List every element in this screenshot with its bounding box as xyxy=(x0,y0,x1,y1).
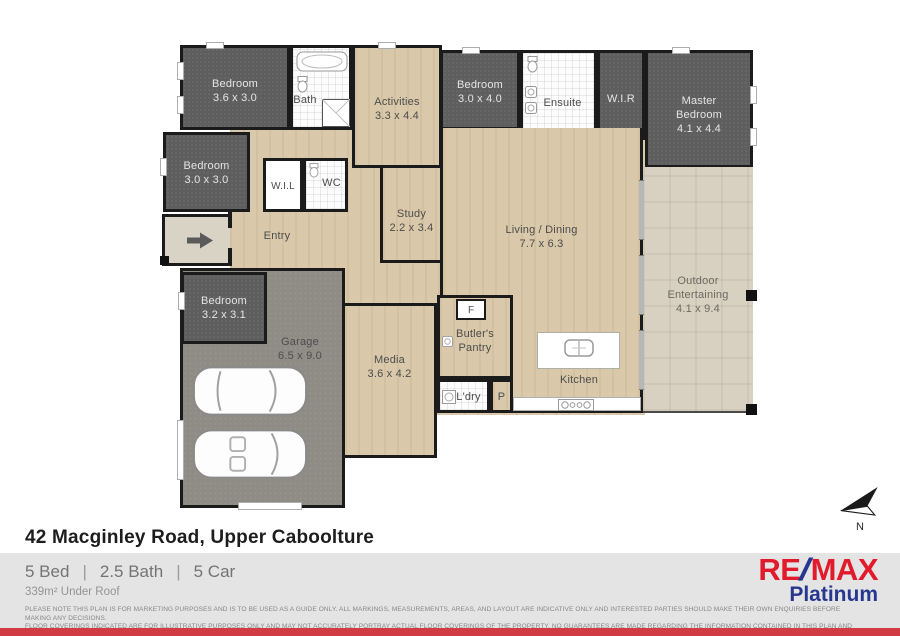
baths-count: 2.5 Bath xyxy=(100,562,163,581)
window xyxy=(672,47,690,54)
room-dims: 3.0 x 3.0 xyxy=(166,174,247,188)
room-dims: 7.7 x 6.3 xyxy=(443,238,640,252)
room-bedroom-2: Bedroom 3.0 x 4.0 xyxy=(440,50,520,130)
room-name: Activities xyxy=(355,96,439,110)
room-name: Ensuite xyxy=(531,97,594,111)
garage-door-opening xyxy=(238,502,302,510)
remax-re: RE xyxy=(758,552,800,587)
room-dims: 4.1 x 4.4 xyxy=(662,123,736,137)
cooktop-icon xyxy=(558,398,594,416)
compass-label: N xyxy=(830,521,890,533)
entry-label: Entry xyxy=(242,230,312,244)
room-wil: W.I.L xyxy=(263,158,303,212)
room-name: Bedroom xyxy=(166,160,247,174)
room-porch xyxy=(162,214,230,266)
room-dims: 3.0 x 4.0 xyxy=(443,93,517,107)
fridge-label: F xyxy=(468,305,474,316)
window xyxy=(160,158,167,176)
window xyxy=(750,86,757,104)
beds-count: 5 Bed xyxy=(25,562,69,581)
room-name: L'dry xyxy=(450,391,487,405)
cars-count: 5 Car xyxy=(194,562,236,581)
room-name: Garage xyxy=(252,336,348,350)
room-dims: 6.5 x 9.0 xyxy=(252,350,348,364)
car-icon xyxy=(191,363,309,424)
room-master-bedroom: Master Bedroom 4.1 x 4.4 xyxy=(645,50,753,168)
sliding-door-icon xyxy=(639,255,644,315)
wall xyxy=(228,248,232,266)
room-name: Study xyxy=(383,208,440,222)
room-name: Outdoor Entertaining xyxy=(651,275,745,303)
window xyxy=(378,42,396,49)
floor-plan: Bedroom 3.6 x 3.0 Bath Activities 3.3 x … xyxy=(0,0,900,520)
room-name: Master Bedroom xyxy=(662,95,736,123)
floorplan-page: Bedroom 3.6 x 3.0 Bath Activities 3.3 x … xyxy=(0,0,900,636)
bathtub-icon xyxy=(296,51,348,77)
sliding-door-icon xyxy=(639,330,644,390)
room-dims: 3.6 x 3.0 xyxy=(183,92,287,106)
room-outdoor-entertaining: Outdoor Entertaining 4.1 x 9.4 xyxy=(643,167,753,413)
north-arrow-icon xyxy=(836,505,884,522)
stats-separator: | xyxy=(176,562,180,581)
remax-max: MAX xyxy=(811,552,878,587)
room-name: Bedroom xyxy=(443,79,517,93)
room-name: Bedroom xyxy=(183,78,287,92)
disclaimer-line-1: PLEASE NOTE THIS PLAN IS FOR MARKETING P… xyxy=(25,606,855,623)
room-name: Living / Dining xyxy=(443,224,640,238)
room-wc: WC xyxy=(303,158,348,212)
room-name: W.I.R xyxy=(600,93,642,107)
kitchen-label: Kitchen xyxy=(544,374,614,388)
room-name: P xyxy=(493,391,510,405)
room-name: W.I.L xyxy=(266,181,300,194)
address: 42 Macginley Road, Upper Caboolture xyxy=(25,527,374,549)
room-dims: 3.6 x 4.2 xyxy=(345,368,434,382)
room-name: Bath xyxy=(283,94,327,108)
window xyxy=(462,47,480,54)
kitchen-island xyxy=(537,332,620,369)
window xyxy=(177,420,184,480)
room-dims: 4.1 x 9.4 xyxy=(651,303,745,317)
room-name: WC xyxy=(318,177,345,191)
room-dims: 3.3 x 4.4 xyxy=(355,110,439,124)
fridge-space: F xyxy=(456,299,486,320)
room-dims: 3.2 x 3.1 xyxy=(184,309,264,323)
entry-arrow-icon xyxy=(185,231,215,255)
room-name: Butler's Pantry xyxy=(443,328,507,356)
room-activities: Activities 3.3 x 4.4 xyxy=(352,45,442,168)
sink-icon xyxy=(564,339,594,362)
kitchen-bench xyxy=(513,397,641,411)
room-bedroom-4: Bedroom 3.2 x 3.1 xyxy=(181,272,267,344)
sliding-door-icon xyxy=(639,180,644,240)
platinum-wordmark: Platinum xyxy=(758,585,878,605)
room-name: Entry xyxy=(242,230,312,244)
toilet-icon xyxy=(526,56,539,78)
garage-label: Garage 6.5 x 9.0 xyxy=(252,336,348,364)
room-laundry: L'dry xyxy=(437,379,490,413)
room-pantry: P xyxy=(490,379,513,413)
room-bedroom-3: Bedroom 3.0 x 3.0 xyxy=(163,132,250,212)
room-media: Media 3.6 x 4.2 xyxy=(342,303,437,458)
floor-area: 339m² Under Roof xyxy=(25,586,120,598)
room-bath: Bath xyxy=(290,45,352,130)
room-name: Media xyxy=(345,354,434,368)
remax-logo: RE/MAX Platinum xyxy=(758,555,878,605)
remax-wordmark: RE/MAX xyxy=(758,555,878,585)
stats-separator: | xyxy=(82,562,86,581)
post xyxy=(746,404,757,415)
room-bedroom-1: Bedroom 3.6 x 3.0 xyxy=(180,45,290,130)
window xyxy=(177,96,184,114)
room-study: Study 2.2 x 3.4 xyxy=(380,165,440,263)
compass: N xyxy=(830,484,890,533)
post xyxy=(160,256,169,265)
room-wir: W.I.R xyxy=(597,50,645,140)
property-stats: 5 Bed|2.5 Bath|5 Car xyxy=(25,562,235,582)
room-name: Bedroom xyxy=(184,295,264,309)
post xyxy=(746,290,757,301)
window xyxy=(178,292,185,310)
room-name: Kitchen xyxy=(544,374,614,388)
footer-bar: 5 Bed|2.5 Bath|5 Car 339m² Under Roof PL… xyxy=(0,553,900,628)
window xyxy=(750,128,757,146)
wall xyxy=(228,212,232,228)
car-icon xyxy=(191,425,309,488)
brand-red-bar xyxy=(0,628,900,636)
room-dims: 2.2 x 3.4 xyxy=(383,222,440,236)
window xyxy=(177,62,184,80)
window xyxy=(206,42,224,49)
